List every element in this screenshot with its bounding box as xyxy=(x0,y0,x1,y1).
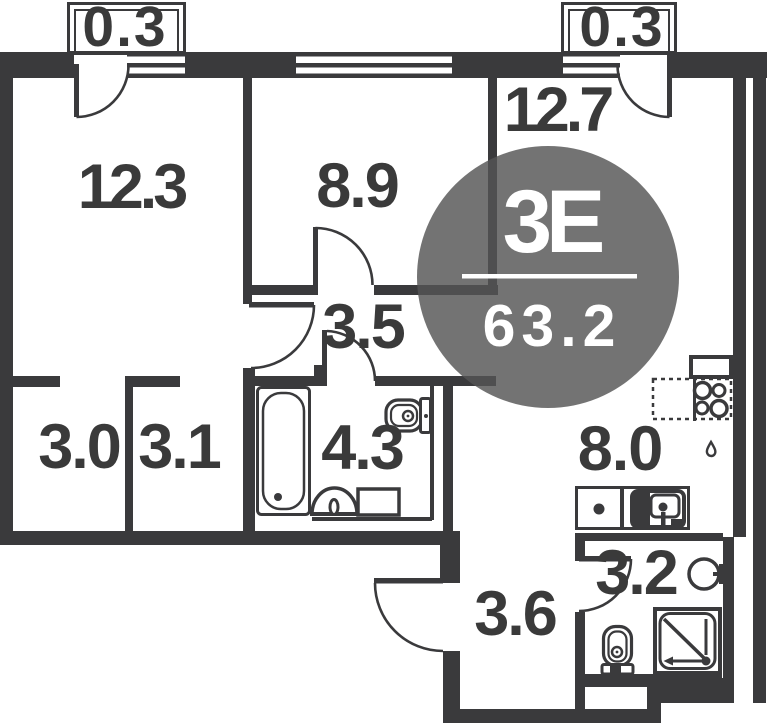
svg-text:3.2: 3.2 xyxy=(595,538,677,608)
svg-text:8.0: 8.0 xyxy=(578,414,663,484)
svg-text:8.9: 8.9 xyxy=(316,151,398,221)
svg-text:3.0: 3.0 xyxy=(38,412,120,482)
svg-text:12.3: 12.3 xyxy=(78,152,187,222)
svg-text:12.7: 12.7 xyxy=(504,75,613,145)
svg-text:4.3: 4.3 xyxy=(321,413,403,483)
svg-text:0.3: 0.3 xyxy=(82,0,167,59)
svg-text:3.6: 3.6 xyxy=(474,579,556,649)
svg-text:3.1: 3.1 xyxy=(138,412,221,482)
svg-text:0.3: 0.3 xyxy=(579,0,664,59)
svg-text:3Е: 3Е xyxy=(503,171,602,271)
svg-text:3.5: 3.5 xyxy=(322,292,405,362)
svg-text:63.2: 63.2 xyxy=(483,293,622,359)
